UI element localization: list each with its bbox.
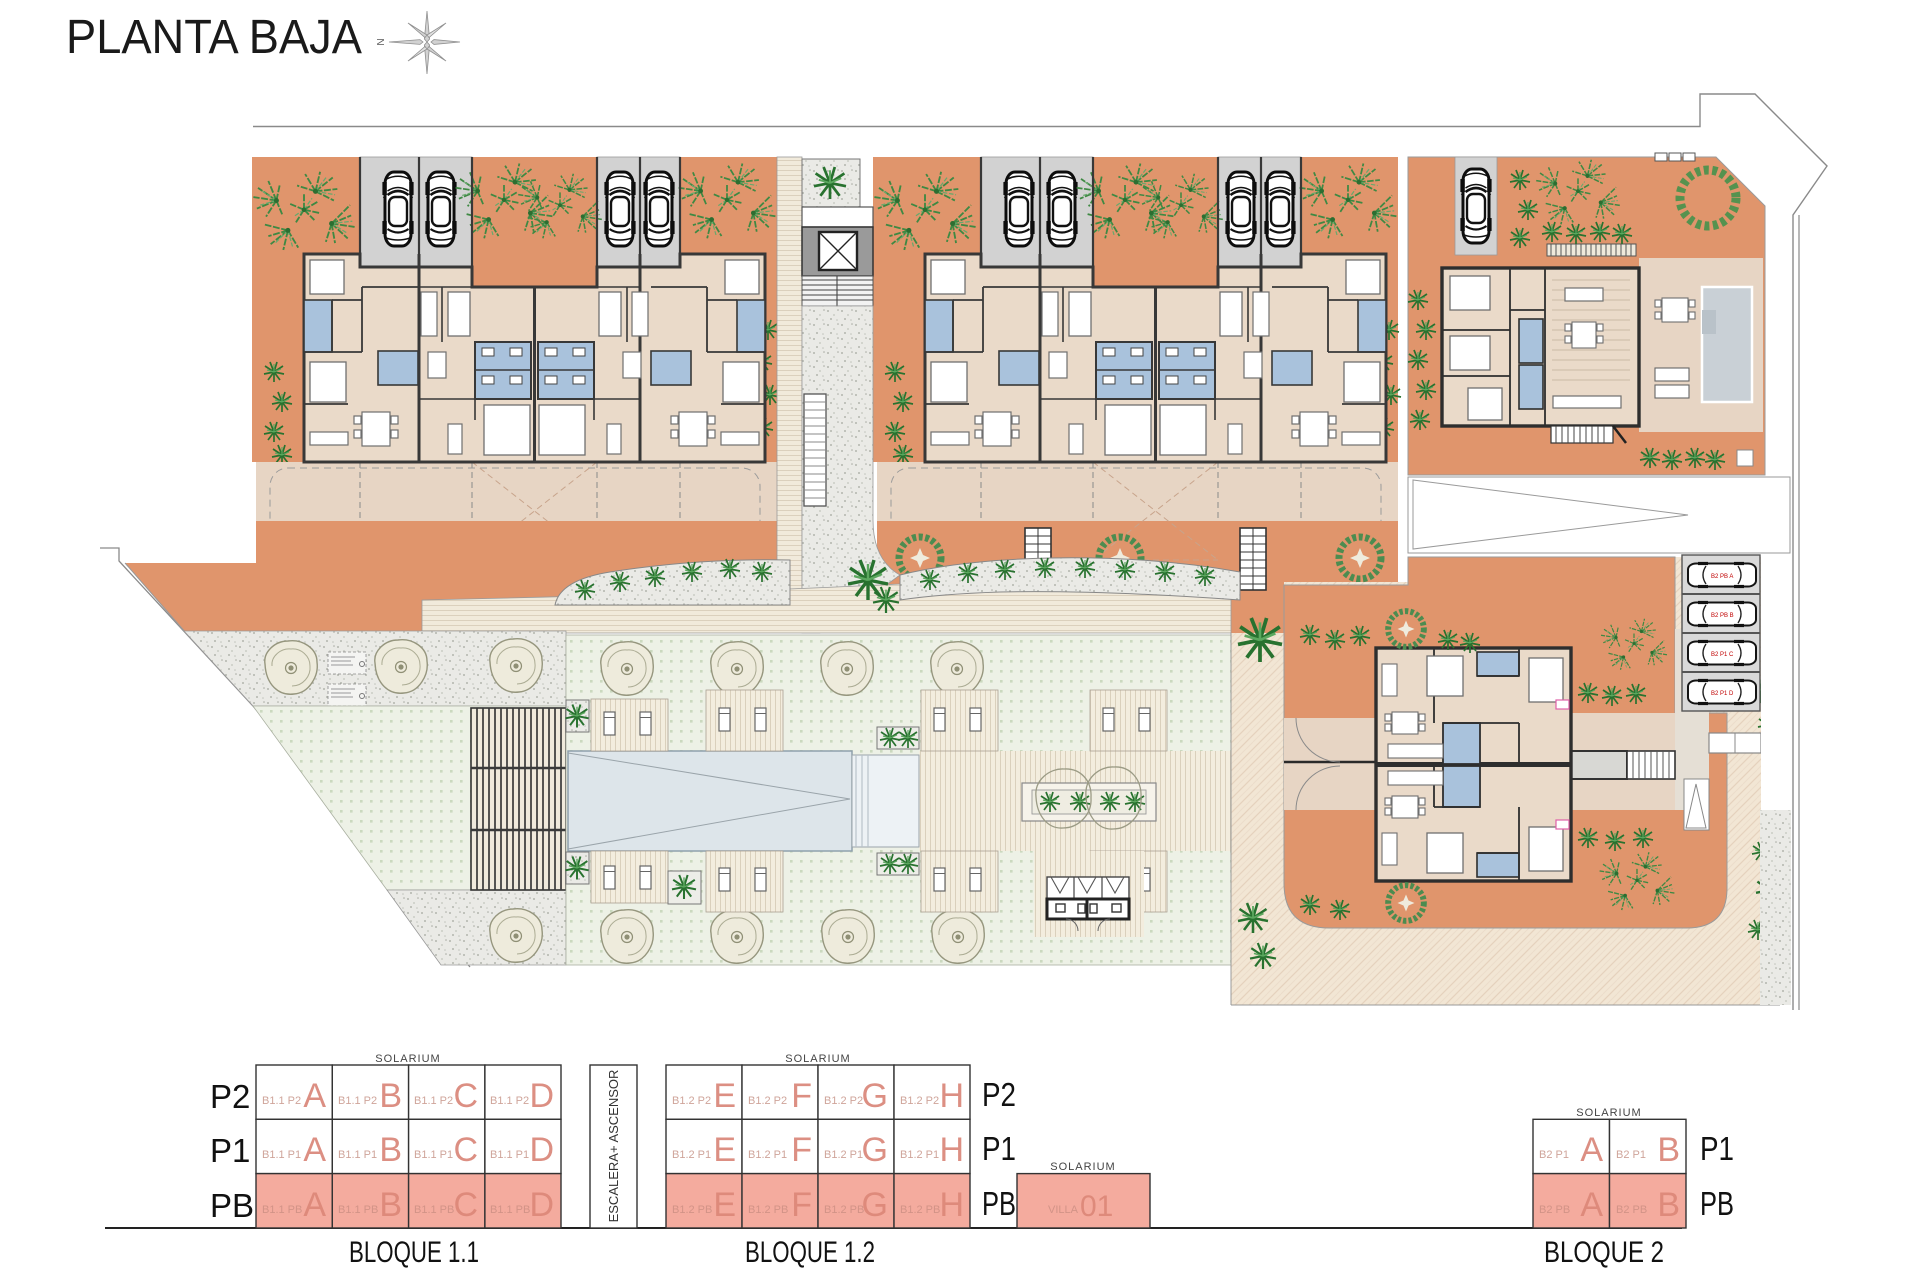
svg-text:PB: PB (1700, 1185, 1734, 1222)
svg-text:B1.1 P1: B1.1 P1 (490, 1149, 529, 1161)
svg-text:B1.2 P2: B1.2 P2 (900, 1095, 939, 1107)
svg-text:B1.2 P2: B1.2 P2 (824, 1095, 863, 1107)
svg-text:A: A (303, 1131, 326, 1169)
svg-text:A: A (1580, 1131, 1603, 1169)
svg-text:F: F (791, 1186, 812, 1224)
svg-text:B: B (1657, 1131, 1680, 1169)
svg-text:B: B (379, 1131, 402, 1169)
svg-text:SOLARIUM: SOLARIUM (375, 1053, 440, 1065)
svg-text:E: E (713, 1077, 736, 1115)
svg-text:P2: P2 (982, 1076, 1016, 1113)
svg-text:B1.2 PB: B1.2 PB (672, 1204, 712, 1216)
svg-text:B1.2 P1: B1.2 P1 (824, 1149, 863, 1161)
svg-text:G: G (862, 1186, 888, 1224)
svg-text:B1.1 P2: B1.1 P2 (338, 1095, 377, 1107)
svg-text:PB: PB (210, 1187, 254, 1224)
svg-text:B1.2 PB: B1.2 PB (748, 1204, 788, 1216)
svg-text:B: B (379, 1186, 402, 1224)
svg-text:C: C (453, 1186, 478, 1224)
svg-text:B1.1 P1: B1.1 P1 (338, 1149, 377, 1161)
svg-text:D: D (529, 1186, 554, 1224)
svg-text:B1.1 P2: B1.1 P2 (262, 1095, 301, 1107)
svg-text:G: G (862, 1131, 888, 1169)
svg-text:B1.2 P2: B1.2 P2 (672, 1095, 711, 1107)
svg-text:B1.1 P2: B1.1 P2 (414, 1095, 453, 1107)
svg-text:SOLARIUM: SOLARIUM (1576, 1107, 1641, 1119)
svg-text:H: H (939, 1077, 964, 1115)
svg-text:N: N (376, 38, 387, 45)
svg-text:BLOQUE 1.2: BLOQUE 1.2 (745, 1236, 875, 1269)
svg-text:B1.1 PB: B1.1 PB (490, 1204, 530, 1216)
svg-text:B2 P1 D: B2 P1 D (1711, 691, 1734, 697)
svg-text:H: H (939, 1186, 964, 1224)
svg-text:P2: P2 (210, 1078, 250, 1115)
svg-text:B1.2 P1: B1.2 P1 (748, 1149, 787, 1161)
svg-text:D: D (529, 1131, 554, 1169)
svg-text:B1.2 P2: B1.2 P2 (748, 1095, 787, 1107)
svg-text:B2 PB B: B2 PB B (1711, 613, 1734, 619)
svg-text:B1.1 P1: B1.1 P1 (414, 1149, 453, 1161)
svg-text:B1.1 P1: B1.1 P1 (262, 1149, 301, 1161)
svg-text:VILLA: VILLA (1048, 1204, 1079, 1216)
svg-text:ESCALERA+ ASCENSOR: ESCALERA+ ASCENSOR (606, 1070, 621, 1223)
svg-text:P1: P1 (1700, 1130, 1734, 1167)
svg-text:D: D (529, 1077, 554, 1115)
svg-text:A: A (1580, 1186, 1603, 1224)
svg-text:B2 PB: B2 PB (1616, 1204, 1647, 1216)
svg-text:E: E (713, 1186, 736, 1224)
svg-text:P1: P1 (982, 1130, 1016, 1167)
svg-text:BLOQUE 2: BLOQUE 2 (1544, 1236, 1664, 1269)
svg-text:BLOQUE 1.1: BLOQUE 1.1 (349, 1236, 479, 1269)
svg-text:B2 P1: B2 P1 (1539, 1149, 1569, 1161)
svg-text:B: B (1657, 1186, 1680, 1224)
svg-text:F: F (791, 1077, 812, 1115)
svg-text:H: H (939, 1131, 964, 1169)
svg-text:B1.1 PB: B1.1 PB (262, 1204, 302, 1216)
svg-text:E: E (713, 1131, 736, 1169)
svg-text:B1.2 PB: B1.2 PB (900, 1204, 940, 1216)
svg-text:B2 P1: B2 P1 (1616, 1149, 1646, 1161)
svg-text:B1.1 P2: B1.1 P2 (490, 1095, 529, 1107)
svg-text:P1: P1 (210, 1132, 250, 1169)
svg-text:PB: PB (982, 1185, 1016, 1222)
svg-text:B2 PB A: B2 PB A (1711, 574, 1733, 580)
svg-text:C: C (453, 1131, 478, 1169)
svg-text:B2 P1 C: B2 P1 C (1711, 652, 1734, 658)
svg-text:B2 PB: B2 PB (1539, 1204, 1570, 1216)
svg-text:A: A (303, 1186, 326, 1224)
svg-text:SOLARIUM: SOLARIUM (785, 1053, 850, 1065)
svg-text:B: B (379, 1077, 402, 1115)
svg-text:F: F (791, 1131, 812, 1169)
svg-text:G: G (862, 1077, 888, 1115)
svg-text:PLANTA BAJA: PLANTA BAJA (66, 11, 362, 64)
svg-text:B1.2 P1: B1.2 P1 (900, 1149, 939, 1161)
svg-text:A: A (303, 1077, 326, 1115)
svg-text:B1.1 PB: B1.1 PB (338, 1204, 378, 1216)
svg-text:SOLARIUM: SOLARIUM (1050, 1161, 1115, 1173)
svg-text:B1.1 PB: B1.1 PB (414, 1204, 454, 1216)
svg-text:C: C (453, 1077, 478, 1115)
svg-text:01: 01 (1080, 1190, 1113, 1223)
svg-text:B1.2 PB: B1.2 PB (824, 1204, 864, 1216)
svg-text:B1.2 P1: B1.2 P1 (672, 1149, 711, 1161)
